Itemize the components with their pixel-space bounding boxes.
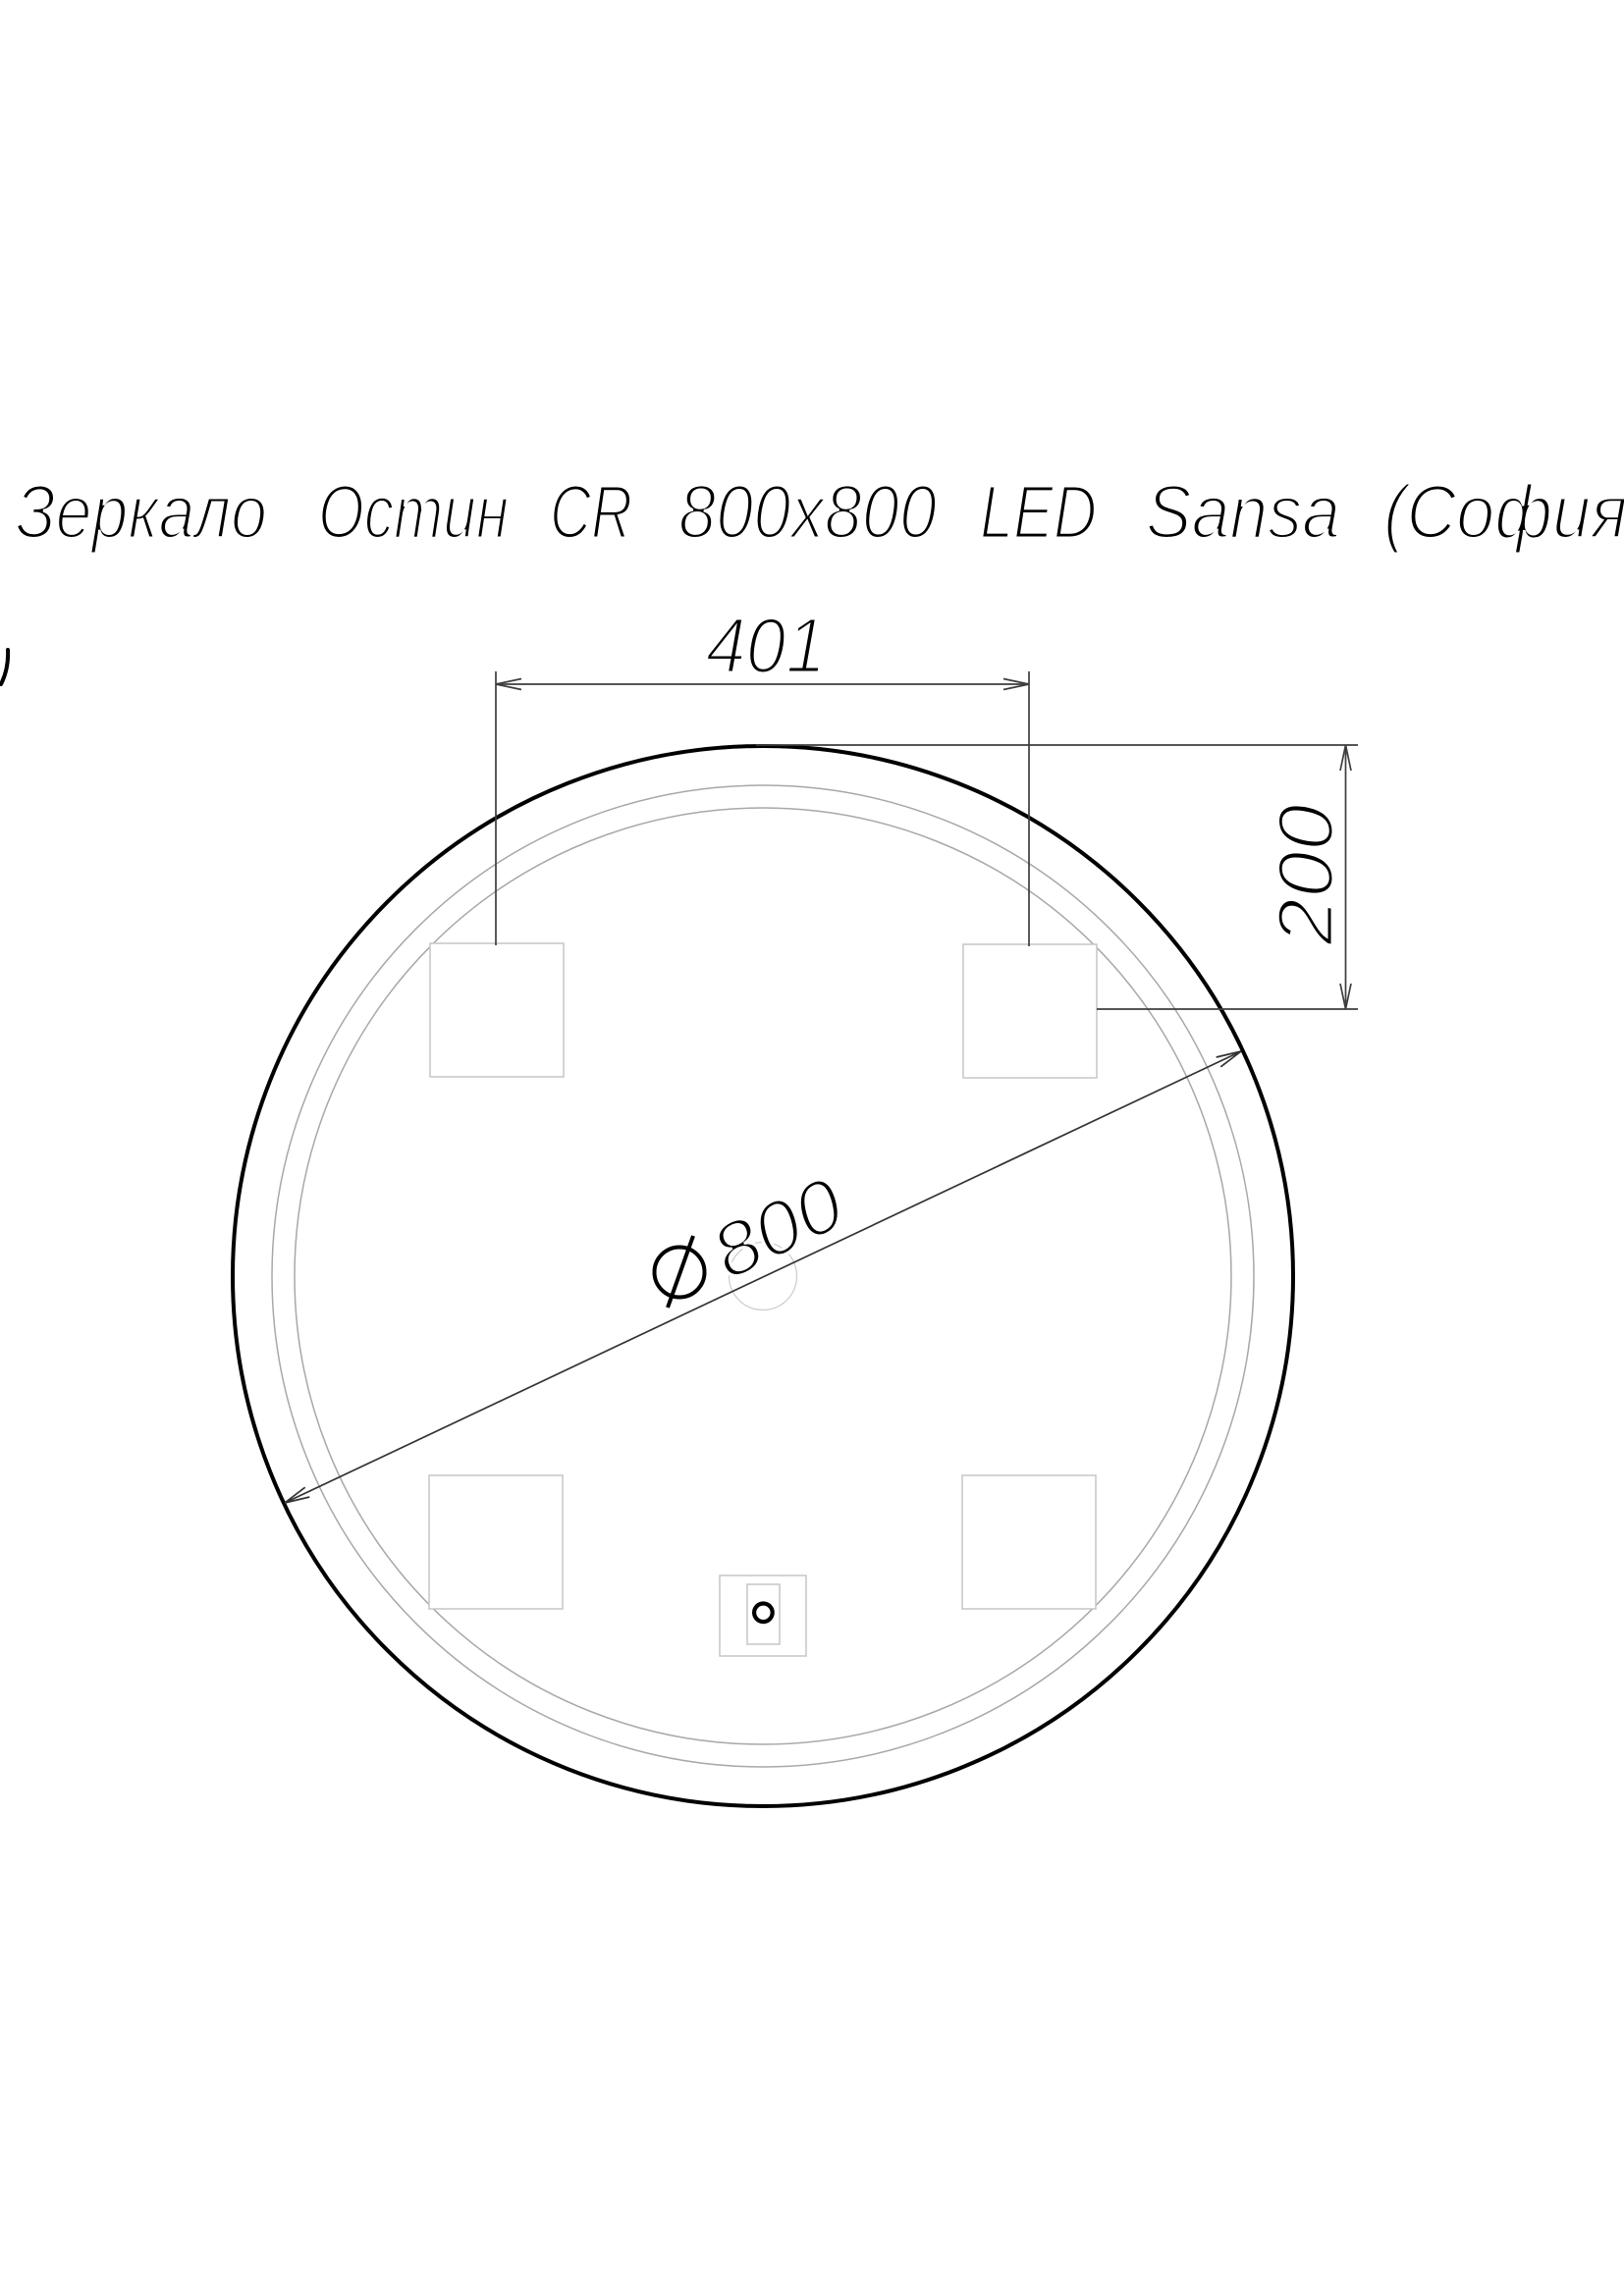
svg-text:800х800: 800х800 [678,470,937,555]
svg-text:CR: CR [550,470,632,555]
svg-text:Зеркало: Зеркало [16,470,267,555]
svg-text:401: 401 [706,602,826,689]
svg-text:Остин: Остин [318,470,509,555]
svg-text:LED: LED [980,470,1097,555]
svg-text:200: 200 [1262,804,1349,946]
svg-text:(София): (София) [1383,470,1624,555]
svg-text:Sansa: Sansa [1146,470,1340,555]
